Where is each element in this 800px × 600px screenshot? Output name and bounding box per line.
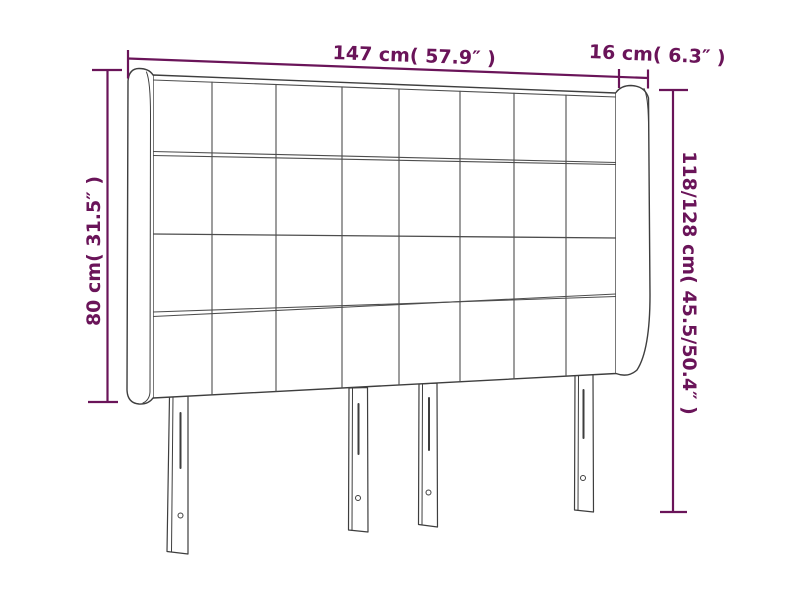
leg-2-screw-hole (356, 496, 361, 501)
leg-4-screw-hole (581, 476, 586, 481)
leg-4 (575, 374, 594, 512)
leg-1-screw-hole (178, 513, 183, 518)
headboard-legs (167, 374, 594, 554)
leg-3 (419, 383, 438, 527)
headboard-dimension-diagram: 147 cm( 57.9″ ) 16 cm( 6.3″ ) 80 cm( 31.… (0, 0, 800, 600)
left-height-label: 80 cm( 31.5″ ) (83, 176, 105, 326)
total-width-label: 147 cm( 57.9″ ) (332, 42, 496, 70)
headboard-right-wing (616, 86, 650, 376)
wing-width-label: 16 cm( 6.3″ ) (588, 41, 726, 69)
leg-3-screw-hole (426, 490, 431, 495)
diagram-canvas: 147 cm( 57.9″ ) 16 cm( 6.3″ ) 80 cm( 31.… (0, 0, 800, 600)
headboard-drawing (127, 69, 650, 555)
headboard-panel (153, 75, 616, 398)
headboard-left-wing (127, 69, 153, 405)
right-height-label: 118/128 cm( 45.5/50.4″ ) (678, 151, 700, 415)
leg-1 (167, 396, 188, 555)
leg-2 (349, 388, 369, 533)
